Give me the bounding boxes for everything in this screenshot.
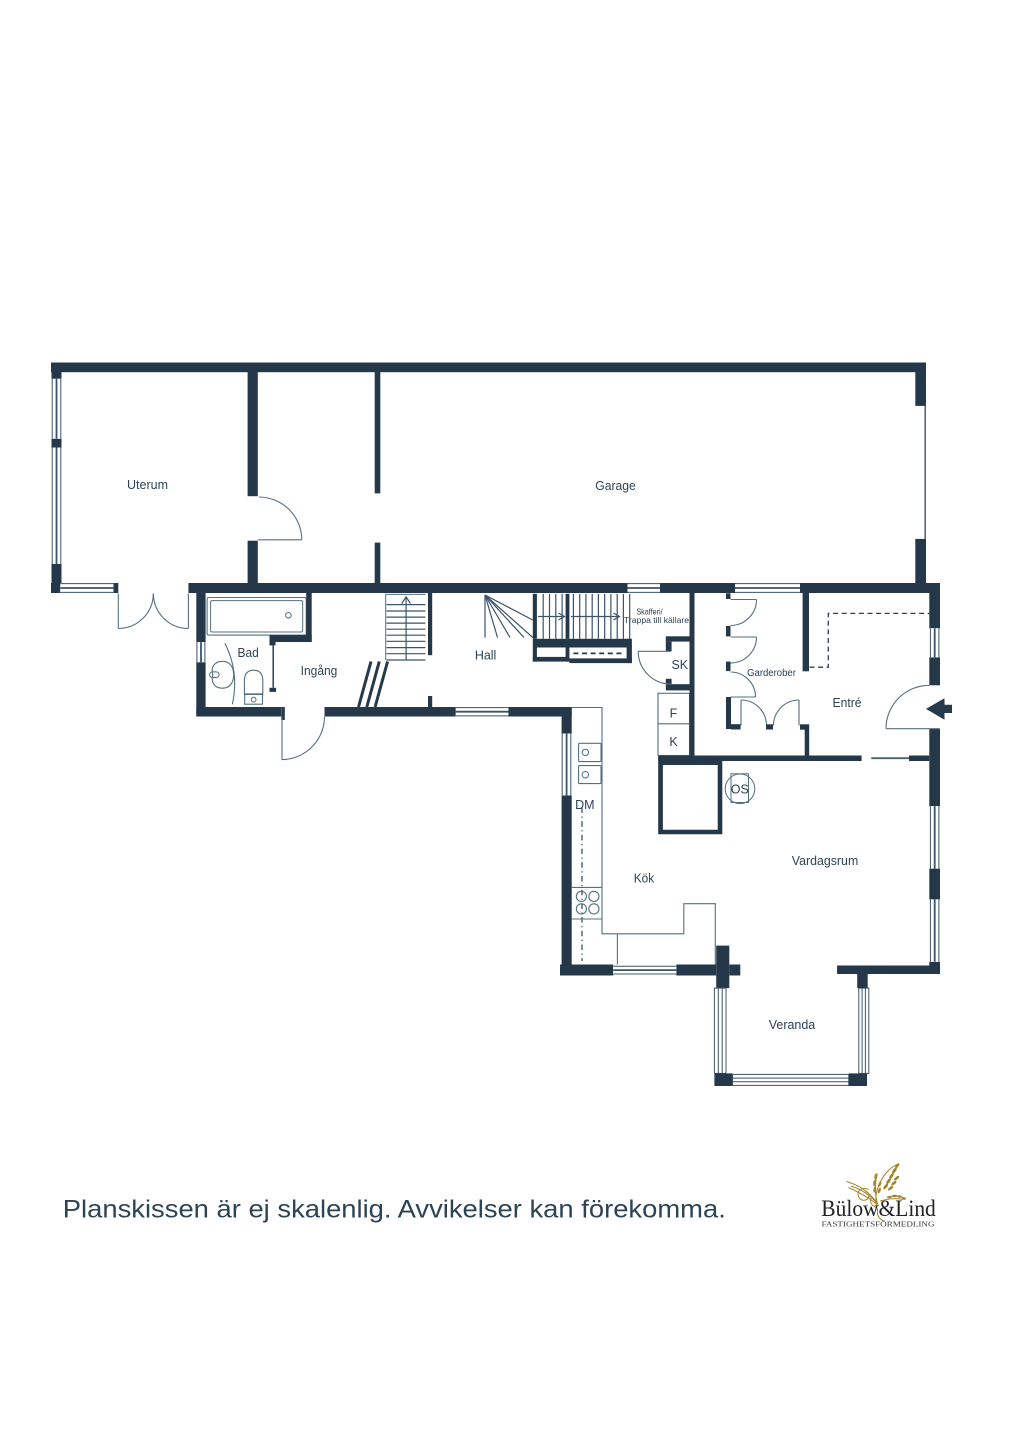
svg-text:Kök: Kök bbox=[634, 871, 655, 886]
svg-text:FASTIGHETSFÖRMEDLING: FASTIGHETSFÖRMEDLING bbox=[822, 1220, 935, 1228]
svg-text:Planskissen är ej skalenlig. A: Planskissen är ej skalenlig. Avvikelser … bbox=[63, 1196, 726, 1224]
svg-text:OS: OS bbox=[731, 782, 749, 796]
svg-text:Entré: Entré bbox=[833, 695, 862, 710]
svg-text:Vardagsrum: Vardagsrum bbox=[792, 853, 859, 868]
svg-text:Garderober: Garderober bbox=[747, 668, 796, 679]
svg-text:Uterum: Uterum bbox=[127, 477, 168, 492]
svg-text:Hall: Hall bbox=[475, 648, 497, 663]
svg-text:F: F bbox=[670, 707, 678, 721]
svg-text:Trappa till källare: Trappa till källare bbox=[624, 616, 690, 625]
svg-text:SK: SK bbox=[671, 658, 688, 672]
svg-text:Garage: Garage bbox=[595, 478, 636, 493]
svg-text:Veranda: Veranda bbox=[769, 1017, 816, 1032]
svg-text:K: K bbox=[669, 735, 678, 749]
svg-text:Ingång: Ingång bbox=[301, 663, 338, 678]
svg-text:Bad: Bad bbox=[238, 645, 259, 660]
svg-text:DM: DM bbox=[575, 798, 594, 812]
svg-text:Bülow&Lind: Bülow&Lind bbox=[821, 1196, 936, 1222]
